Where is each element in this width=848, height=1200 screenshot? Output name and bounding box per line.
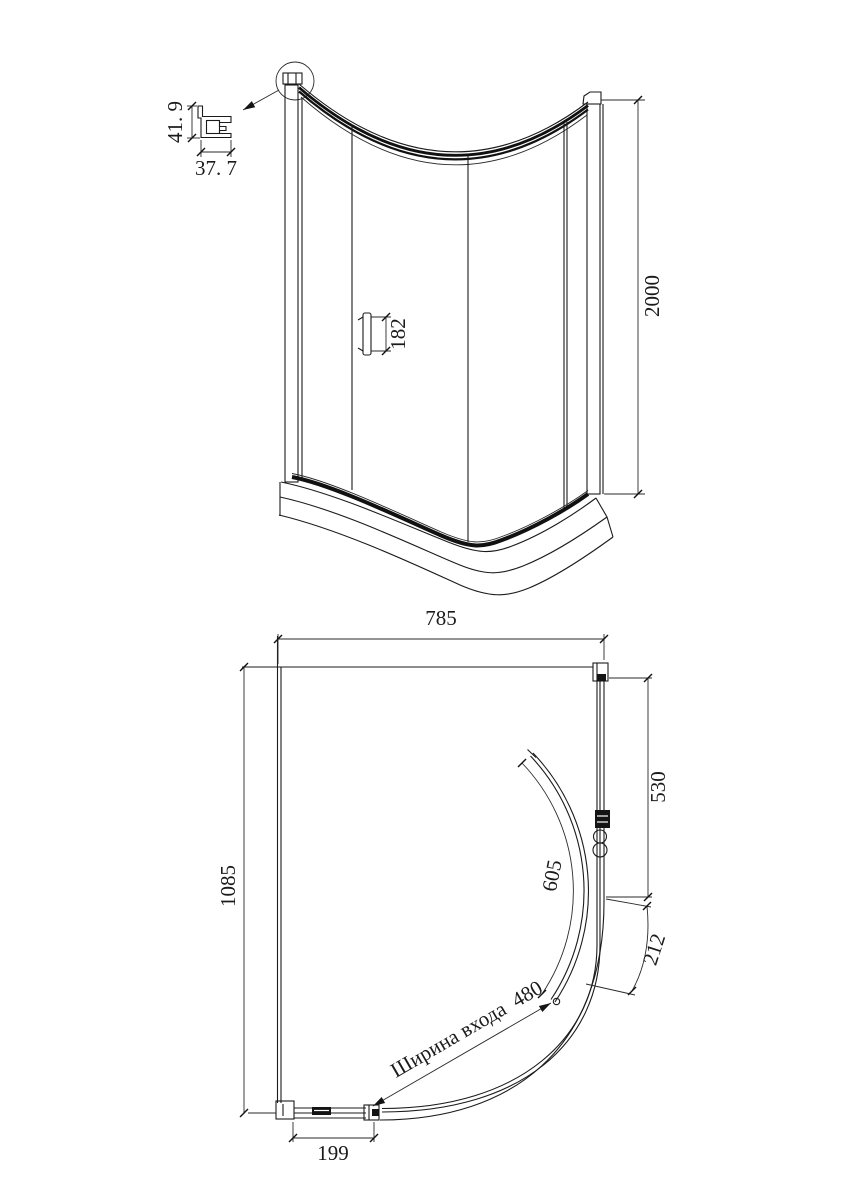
top-rail-band [299,88,588,156]
dim-profile-width: 37. 7 [195,140,237,180]
profile-height-label: 41. 9 [163,101,187,143]
total-height-label: 2000 [640,275,664,317]
drawing-svg: 41. 9 37. 7 [0,0,848,1200]
profile-inner-cavity [207,121,220,134]
plan-view: 785 1085 530 605 [216,606,670,1165]
total-depth-label: 1085 [216,865,240,907]
dim-total-depth: 1085 [216,663,276,1117]
entrance-width-label: Ширина входа 480 [386,975,546,1082]
door-arc-label: 605 [537,858,567,894]
dim-entrance-width: Ширина входа 480 [371,975,553,1109]
right-post [587,104,600,494]
dim-total-width: 785 [274,606,608,664]
handle-length-label: 182 [386,318,410,350]
dim-corner-arc: 212 [586,899,670,995]
side-section-label: 530 [646,771,670,803]
dim-wall-panel: 199 [289,1122,378,1165]
detail-leader-arrowhead [241,101,255,113]
dim-side-section: 530 [606,674,670,901]
technical-drawing-canvas: 41. 9 37. 7 [0,0,848,1200]
profile-detail-callout: 41. 9 37. 7 [163,62,314,180]
total-width-label: 785 [425,606,457,630]
bottom-fixed-panel [276,1101,379,1120]
top-rail-band2 [299,92,588,160]
left-post [285,85,298,482]
profile-width-label: 37. 7 [195,156,237,180]
wall-panel-label: 199 [317,1141,349,1165]
profile-cross-section [198,106,231,138]
enclosure-elevation: 182 2000 [279,84,664,595]
dim-total-height: 2000 [601,96,664,498]
right-post-cap [583,92,601,104]
right-wall-profile [593,663,608,681]
front-elevation-view: 41. 9 37. 7 [163,62,664,595]
dim-door-arc: 605 [518,759,573,998]
dim-handle-length: 182 [371,313,410,355]
wall-bracket [283,73,302,84]
door-handle [358,313,371,355]
dim-profile-height: 41. 9 [163,101,200,143]
door-roller-assembly [593,810,610,857]
corner-arc-label: 212 [638,931,671,968]
